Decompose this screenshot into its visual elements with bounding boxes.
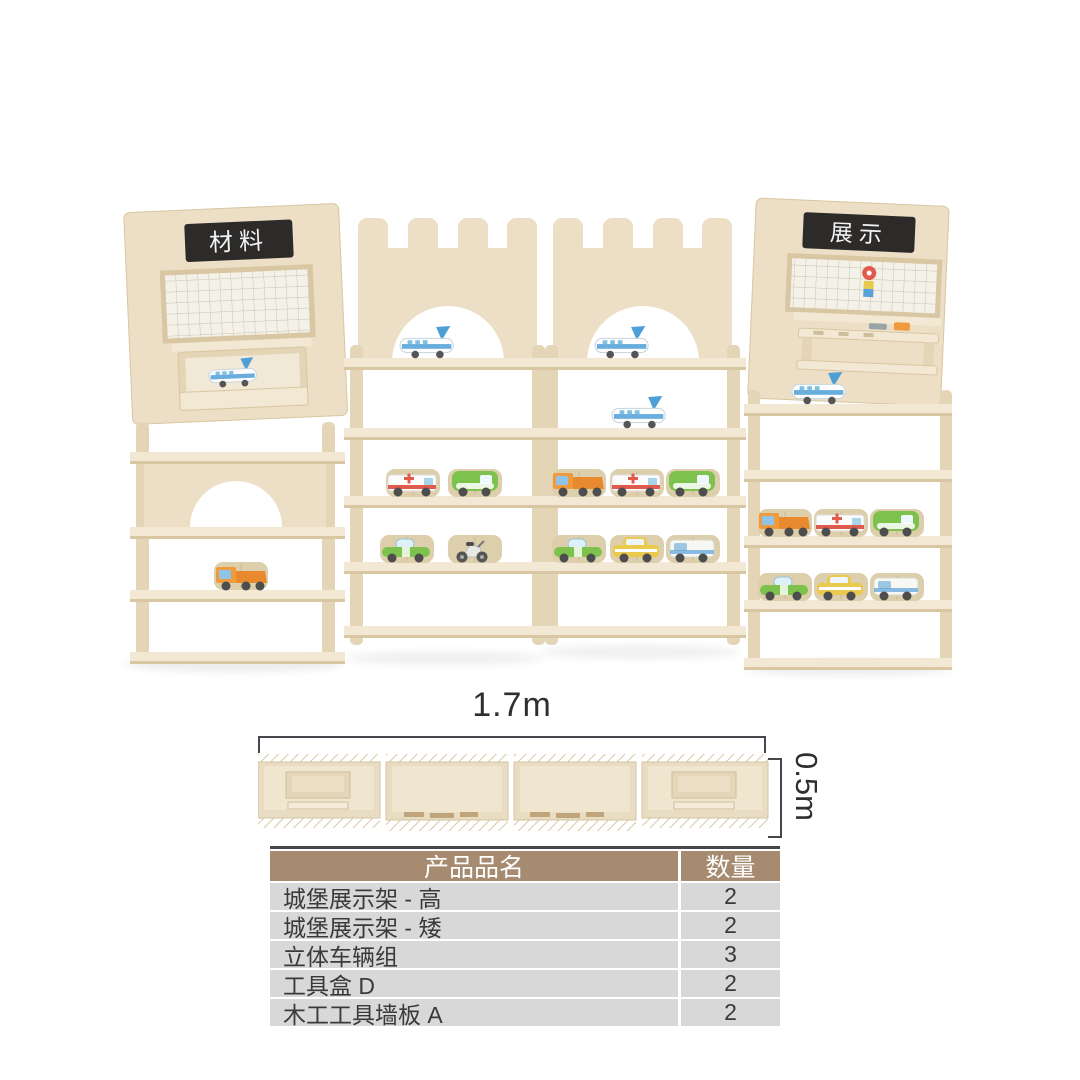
shelf-unit-short-3 <box>539 218 746 645</box>
product-name-cell: 城堡展示架 - 矮 <box>270 912 678 939</box>
shelves-photo-svg: 材料 <box>100 190 960 680</box>
product-photo: 材料 <box>100 190 960 680</box>
unit1-back-panel: 材料 <box>124 203 348 424</box>
sign-left-label: 材料 <box>208 227 269 257</box>
table-top-border <box>270 846 780 849</box>
topview-section-3 <box>514 754 636 831</box>
table-row: 工具盒 D 2 <box>270 970 780 997</box>
table-header-row: 产品品名 数量 <box>270 851 780 881</box>
dim-height-label: 0.5m <box>788 752 824 844</box>
qty-cell: 3 <box>681 941 780 968</box>
shelf-unit-tall-left: 材料 <box>124 203 348 664</box>
top-view-diagram <box>258 754 770 834</box>
table-row: 城堡展示架 - 高 2 <box>270 883 780 910</box>
qty-cell: 2 <box>681 883 780 910</box>
qty-cell: 2 <box>681 999 780 1026</box>
shelf-unit-short-2 <box>344 218 551 645</box>
dim-height-bracket <box>768 758 782 838</box>
qty-cell: 2 <box>681 912 780 939</box>
product-name-cell: 木工工具墙板 A <box>270 999 678 1026</box>
dim-width-bracket <box>258 736 766 753</box>
shelf-unit-tall-right: 展示 <box>744 198 952 670</box>
topview-section-4 <box>642 754 768 828</box>
table-row: 木工工具墙板 A 2 <box>270 999 780 1026</box>
table-header-name: 产品品名 <box>270 851 678 881</box>
pegboard-left <box>162 267 313 341</box>
unit1-shelves <box>130 422 345 664</box>
product-table: 产品品名 数量 城堡展示架 - 高 2 城堡展示架 - 矮 2 立体车辆组 3 … <box>270 846 780 1028</box>
table-row: 立体车辆组 3 <box>270 941 780 968</box>
unit4-back-panel: 展示 <box>748 198 950 406</box>
topview-section-2 <box>386 754 508 831</box>
dim-width-label: 1.7m <box>258 686 766 725</box>
product-name-cell: 城堡展示架 - 高 <box>270 883 678 910</box>
topview-section-1 <box>258 754 380 828</box>
unit2-shelf-boards <box>344 358 551 638</box>
toy-airplane <box>612 396 665 428</box>
table-header-qty: 数量 <box>681 851 780 881</box>
unit3-shelf-boards <box>539 358 746 638</box>
table-row: 城堡展示架 - 矮 2 <box>270 912 780 939</box>
product-name-cell: 立体车辆组 <box>270 941 678 968</box>
qty-cell: 2 <box>681 970 780 997</box>
sign-right-label: 展示 <box>829 219 888 248</box>
product-name-cell: 工具盒 D <box>270 970 678 997</box>
